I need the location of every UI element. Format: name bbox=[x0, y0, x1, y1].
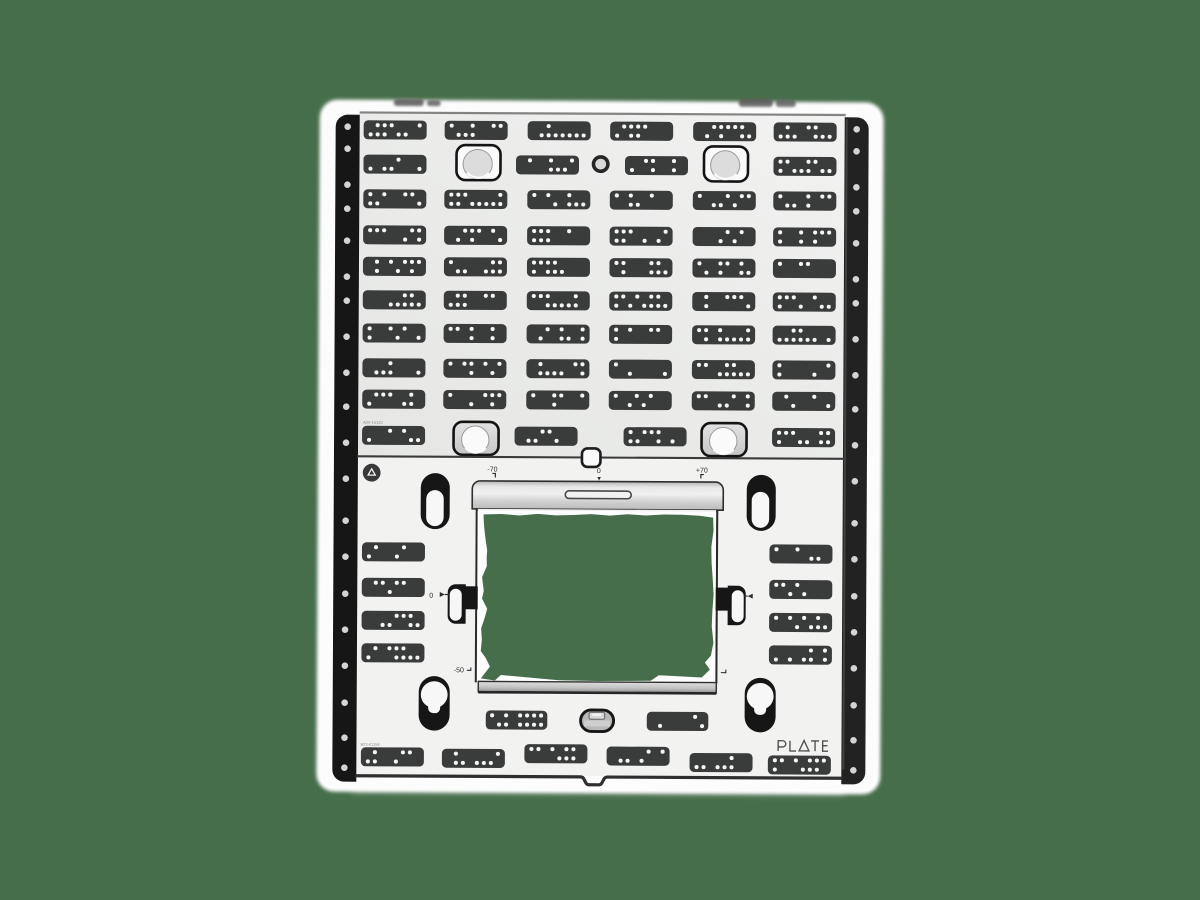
svg-text:B23-01156: B23-01156 bbox=[360, 742, 380, 747]
svg-text:+70: +70 bbox=[696, 468, 708, 475]
svg-text:A20-10123: A20-10123 bbox=[363, 420, 383, 425]
svg-text:-70: -70 bbox=[487, 466, 497, 473]
svg-text:0: 0 bbox=[597, 468, 601, 475]
svg-text:0: 0 bbox=[429, 593, 433, 600]
svg-text:-50: -50 bbox=[454, 667, 464, 674]
